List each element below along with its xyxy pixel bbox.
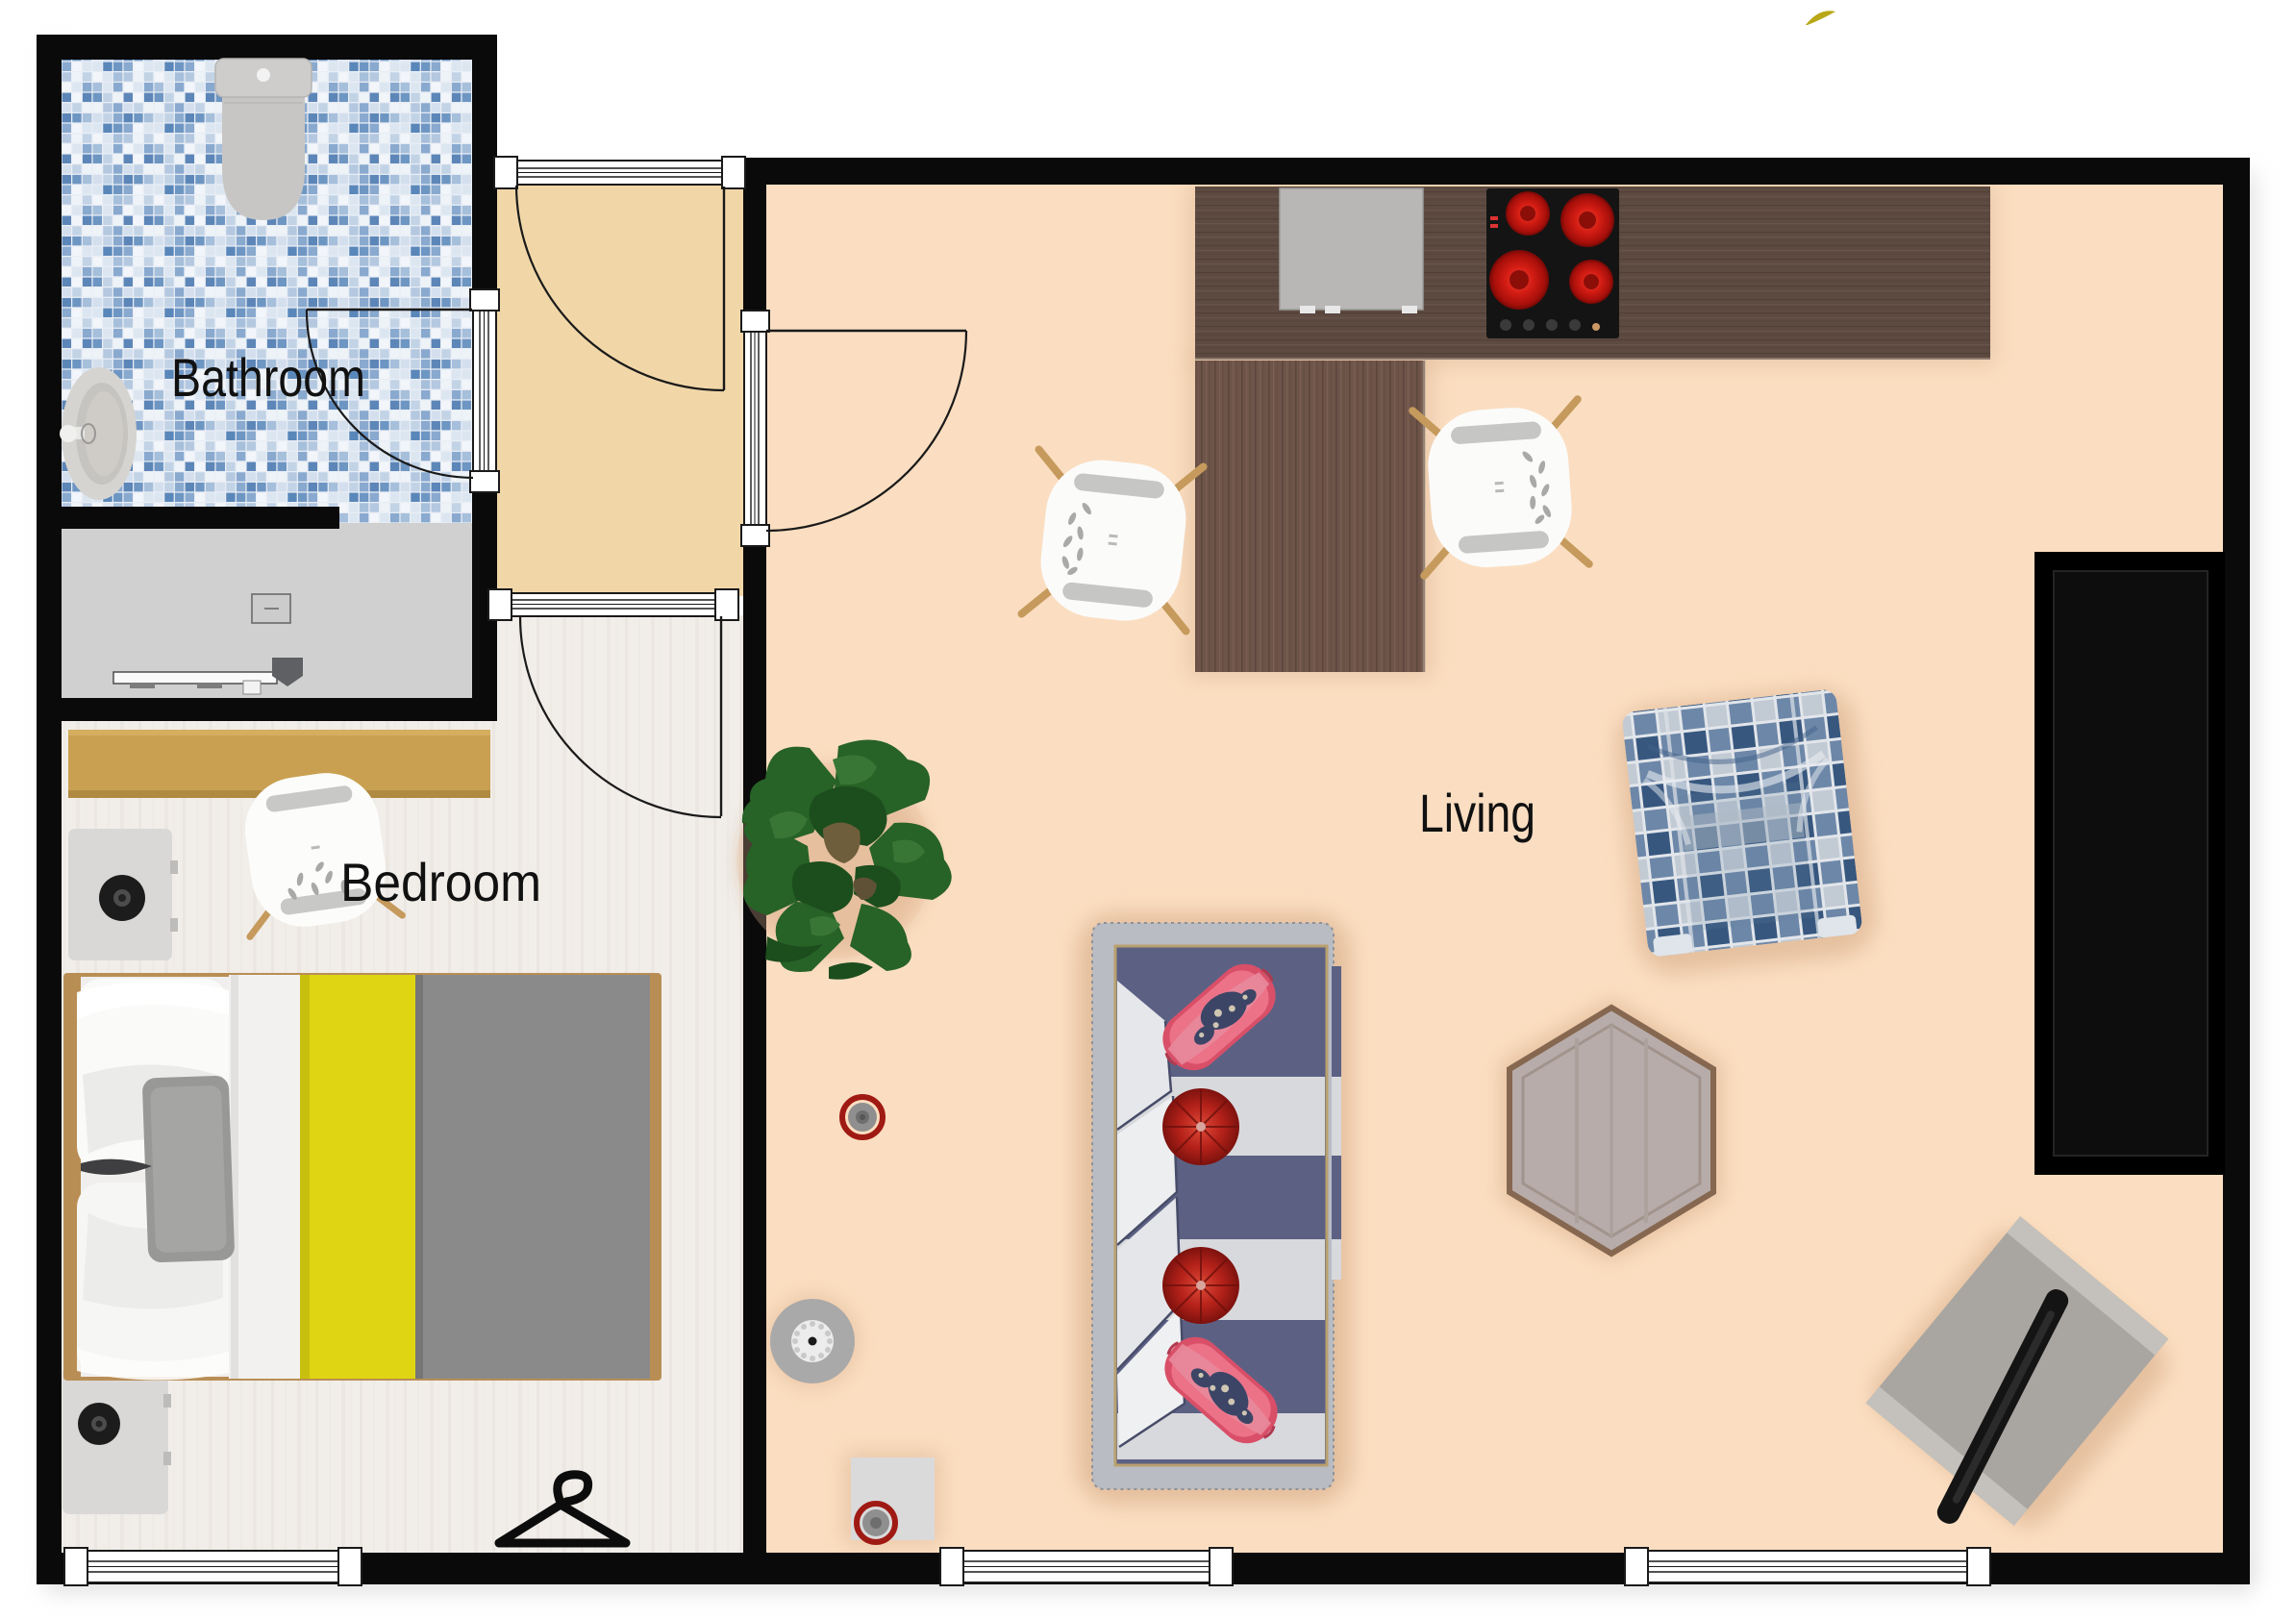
svg-text:Living: Living: [1419, 783, 1535, 843]
svg-text:Bathroom: Bathroom: [171, 347, 365, 408]
svg-text:Bedroom: Bedroom: [340, 852, 541, 912]
